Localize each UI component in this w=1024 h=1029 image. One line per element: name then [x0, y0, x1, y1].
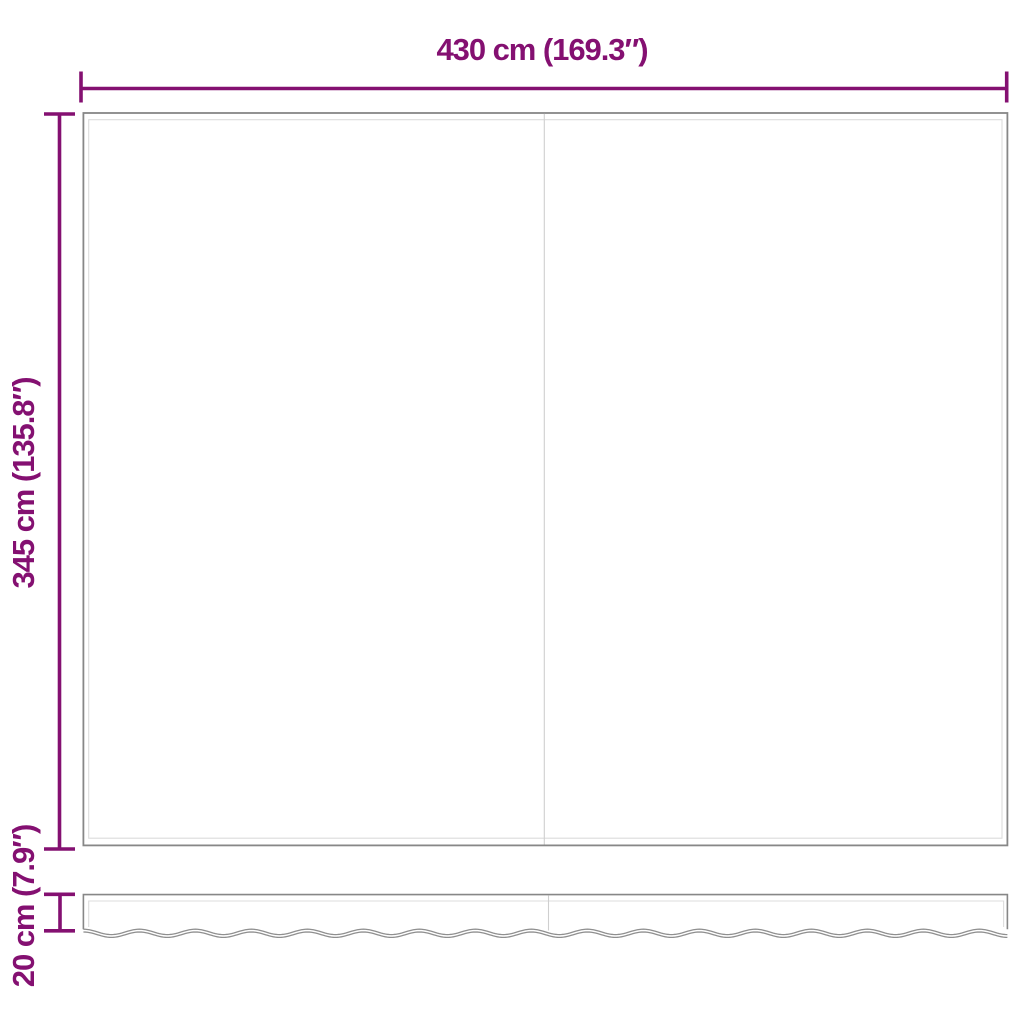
svg-text:345 cm (135.8″): 345 cm (135.8″) — [6, 377, 41, 588]
svg-text:20 cm (7.9″): 20 cm (7.9″) — [6, 825, 41, 988]
svg-text:430 cm (169.3″): 430 cm (169.3″) — [436, 32, 647, 67]
